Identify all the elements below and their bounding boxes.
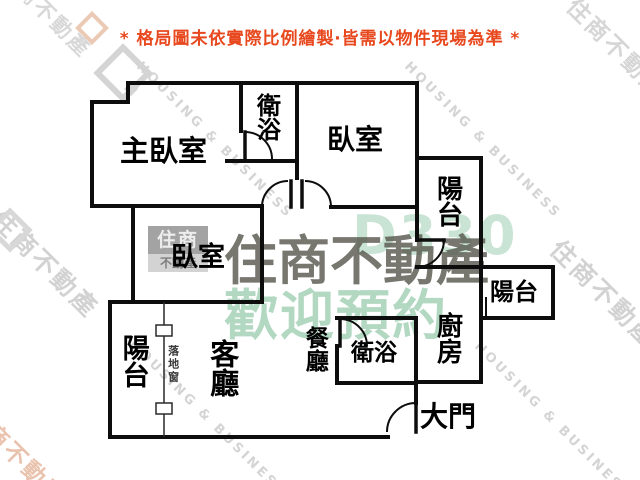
sliding-window-marker-bottom: [156, 403, 172, 414]
floorplan-screenshot: D330 住商不動產 歡迎預約 住商不動產 住商不動產 住商不動產 住商不動產 …: [0, 0, 640, 480]
sliding-window-marker-top: [156, 325, 172, 336]
floorplan-canvas: [0, 0, 640, 480]
walls: [92, 83, 553, 437]
